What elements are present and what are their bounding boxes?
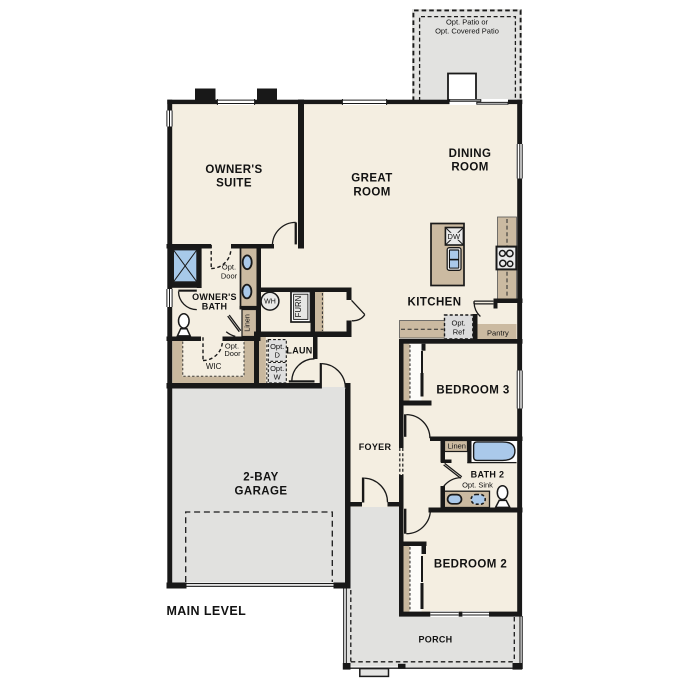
svg-text:Opt. Sink: Opt. Sink xyxy=(462,481,493,490)
svg-text:WIC: WIC xyxy=(206,362,222,371)
svg-text:FURN: FURN xyxy=(294,296,303,318)
svg-text:Opt.: Opt. xyxy=(222,263,236,272)
svg-text:Ref: Ref xyxy=(453,327,466,336)
svg-text:BATH 2: BATH 2 xyxy=(471,469,505,479)
svg-text:Opt.: Opt. xyxy=(452,318,466,327)
svg-text:PORCH: PORCH xyxy=(418,634,452,644)
svg-text:Linen: Linen xyxy=(242,314,251,332)
svg-text:OWNER'S: OWNER'S xyxy=(205,164,262,176)
svg-text:Opt. Patio or: Opt. Patio or xyxy=(446,17,489,26)
svg-text:Opt. Covered Patio: Opt. Covered Patio xyxy=(435,26,499,35)
svg-text:KITCHEN: KITCHEN xyxy=(408,296,462,308)
svg-text:GREAT: GREAT xyxy=(351,172,392,184)
svg-text:DW: DW xyxy=(448,232,461,241)
svg-text:LAUN: LAUN xyxy=(286,346,312,356)
svg-text:Pantry: Pantry xyxy=(487,329,509,338)
svg-text:Door: Door xyxy=(221,272,238,281)
svg-text:GARAGE: GARAGE xyxy=(235,485,288,497)
svg-text:ROOM: ROOM xyxy=(451,161,488,173)
svg-text:SUITE: SUITE xyxy=(216,177,252,189)
svg-text:BEDROOM 2: BEDROOM 2 xyxy=(434,558,507,570)
svg-text:OWNER'S: OWNER'S xyxy=(192,292,237,302)
svg-text:DINING: DINING xyxy=(449,148,492,160)
svg-text:FOYER: FOYER xyxy=(359,442,392,452)
svg-text:Door: Door xyxy=(224,349,241,358)
svg-text:D: D xyxy=(274,351,280,360)
svg-text:BEDROOM 3: BEDROOM 3 xyxy=(436,384,509,396)
svg-text:Linen: Linen xyxy=(448,442,466,451)
svg-text:BATH: BATH xyxy=(202,301,228,311)
svg-text:WH: WH xyxy=(264,298,276,305)
svg-text:W: W xyxy=(274,372,282,381)
svg-text:2-BAY: 2-BAY xyxy=(243,471,278,483)
svg-text:MAIN LEVEL: MAIN LEVEL xyxy=(166,604,246,618)
svg-text:ROOM: ROOM xyxy=(353,186,390,198)
